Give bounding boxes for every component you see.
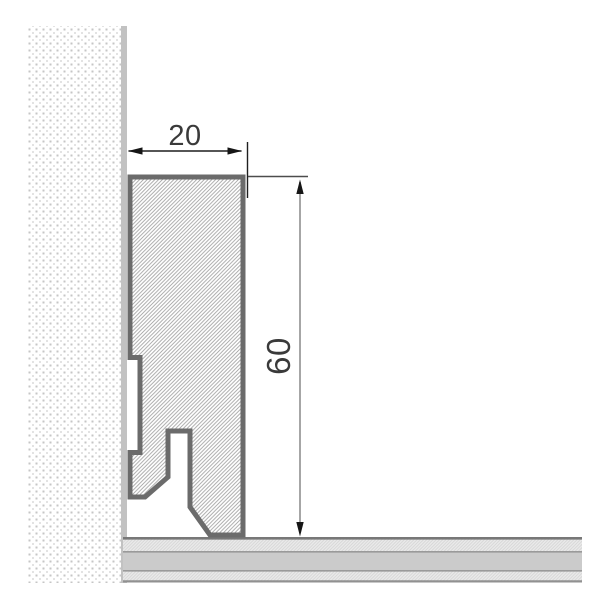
skirting-profile-section <box>130 177 243 535</box>
arrow-down-icon <box>296 522 303 537</box>
technical-drawing-canvas: 20 60 <box>0 0 604 604</box>
arrow-left-icon <box>128 147 143 154</box>
arrow-up-icon <box>296 180 303 195</box>
skirting-profile-drawing: 20 60 <box>0 0 604 604</box>
arrow-right-icon <box>228 147 243 154</box>
wall-dotted-surface <box>27 26 121 583</box>
height-dimension-label: 60 <box>260 337 297 375</box>
height-dimension: 60 <box>248 177 308 537</box>
floor-core-layer <box>123 552 582 571</box>
wall <box>27 26 127 583</box>
wall-edge <box>121 26 127 583</box>
floor <box>123 538 582 582</box>
width-dimension-label: 20 <box>168 120 201 152</box>
